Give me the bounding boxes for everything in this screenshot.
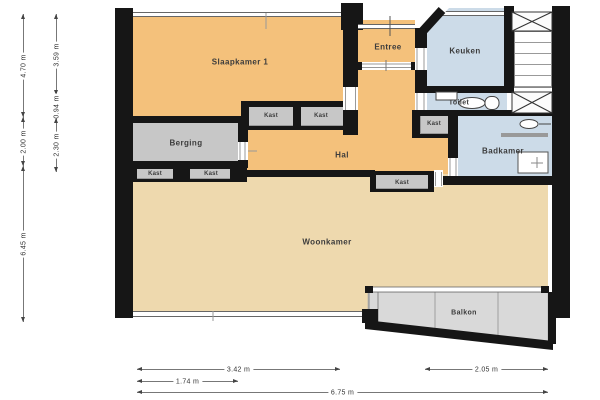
shaft-box-top	[512, 12, 552, 31]
wall-right	[552, 6, 570, 318]
dim-label: 6.75 m	[328, 389, 357, 396]
stairwell	[514, 31, 552, 88]
dim-bottom-205: 2.05 m	[425, 369, 548, 370]
dim-bottom-174: 1.74 m	[137, 381, 238, 382]
label-kast-5: Kast	[427, 121, 441, 127]
dim-left-inner-3: 2.30 m	[56, 118, 57, 172]
wall-berging-top	[131, 116, 248, 123]
label-keuken: Keuken	[449, 47, 480, 56]
label-hal: Hal	[335, 151, 349, 160]
label-woonkamer: Woonkamer	[302, 238, 351, 247]
dim-label: 3.42 m	[224, 366, 253, 373]
balkon-wall-slanted	[365, 320, 553, 350]
dim-label: 6.45 m	[20, 230, 27, 257]
dim-left-inner-2: 0.94 m	[56, 95, 57, 118]
wall-keuken-left-top	[415, 28, 427, 48]
wall-entree-bottom-right	[411, 62, 421, 70]
label-kast-2: Kast	[314, 113, 328, 119]
label-balkon: Balkon	[451, 310, 477, 317]
floorplan-canvas: Slaapkamer 1 Entree Keuken Toilet Badkam…	[0, 0, 600, 400]
label-berging: Berging	[169, 139, 202, 148]
dim-label: 0.94 m	[53, 93, 60, 120]
entree-front-door-band	[358, 24, 415, 29]
dim-label: 2.05 m	[472, 366, 501, 373]
window-keuken-top	[427, 11, 504, 16]
wall-badkamer-bottom	[443, 176, 554, 185]
label-kast-6: Kast	[395, 180, 409, 186]
label-kast-1: Kast	[264, 113, 278, 119]
label-slaapkamer1: Slaapkamer 1	[212, 58, 268, 67]
wall-entree-bottom-left	[352, 62, 362, 70]
wall-slaapkamer-upper	[343, 28, 358, 87]
label-kast-3: Kast	[148, 171, 162, 177]
window-woonkamer-bottom	[133, 311, 363, 317]
dim-bottom-675: 6.75 m	[137, 392, 548, 393]
label-badkamer: Badkamer	[482, 147, 524, 156]
dim-label: 4.70 m	[20, 52, 27, 79]
wall-hal-bottom	[243, 170, 375, 177]
dim-label: 1.74 m	[173, 378, 202, 385]
dim-left-outer-1: 4.70 m	[23, 14, 24, 117]
dim-label: 2.30 m	[53, 131, 60, 158]
dim-left-outer-2: 2.00 m	[23, 117, 24, 166]
wall-toilet-top	[415, 86, 514, 93]
dim-label: 2.00 m	[20, 128, 27, 155]
dim-left-outer-3: 6.45 m	[23, 166, 24, 322]
dim-bottom-342: 3.42 m	[137, 369, 340, 370]
label-entree: Entree	[374, 43, 401, 52]
label-kast-4: Kast	[204, 171, 218, 177]
label-toilet: Toilet	[449, 100, 470, 107]
dim-left-inner-1: 3.59 m	[56, 14, 57, 95]
dim-label: 3.59 m	[53, 41, 60, 68]
window-slaapkamer-top	[133, 12, 341, 17]
wall-keuken-shaft	[504, 6, 514, 92]
